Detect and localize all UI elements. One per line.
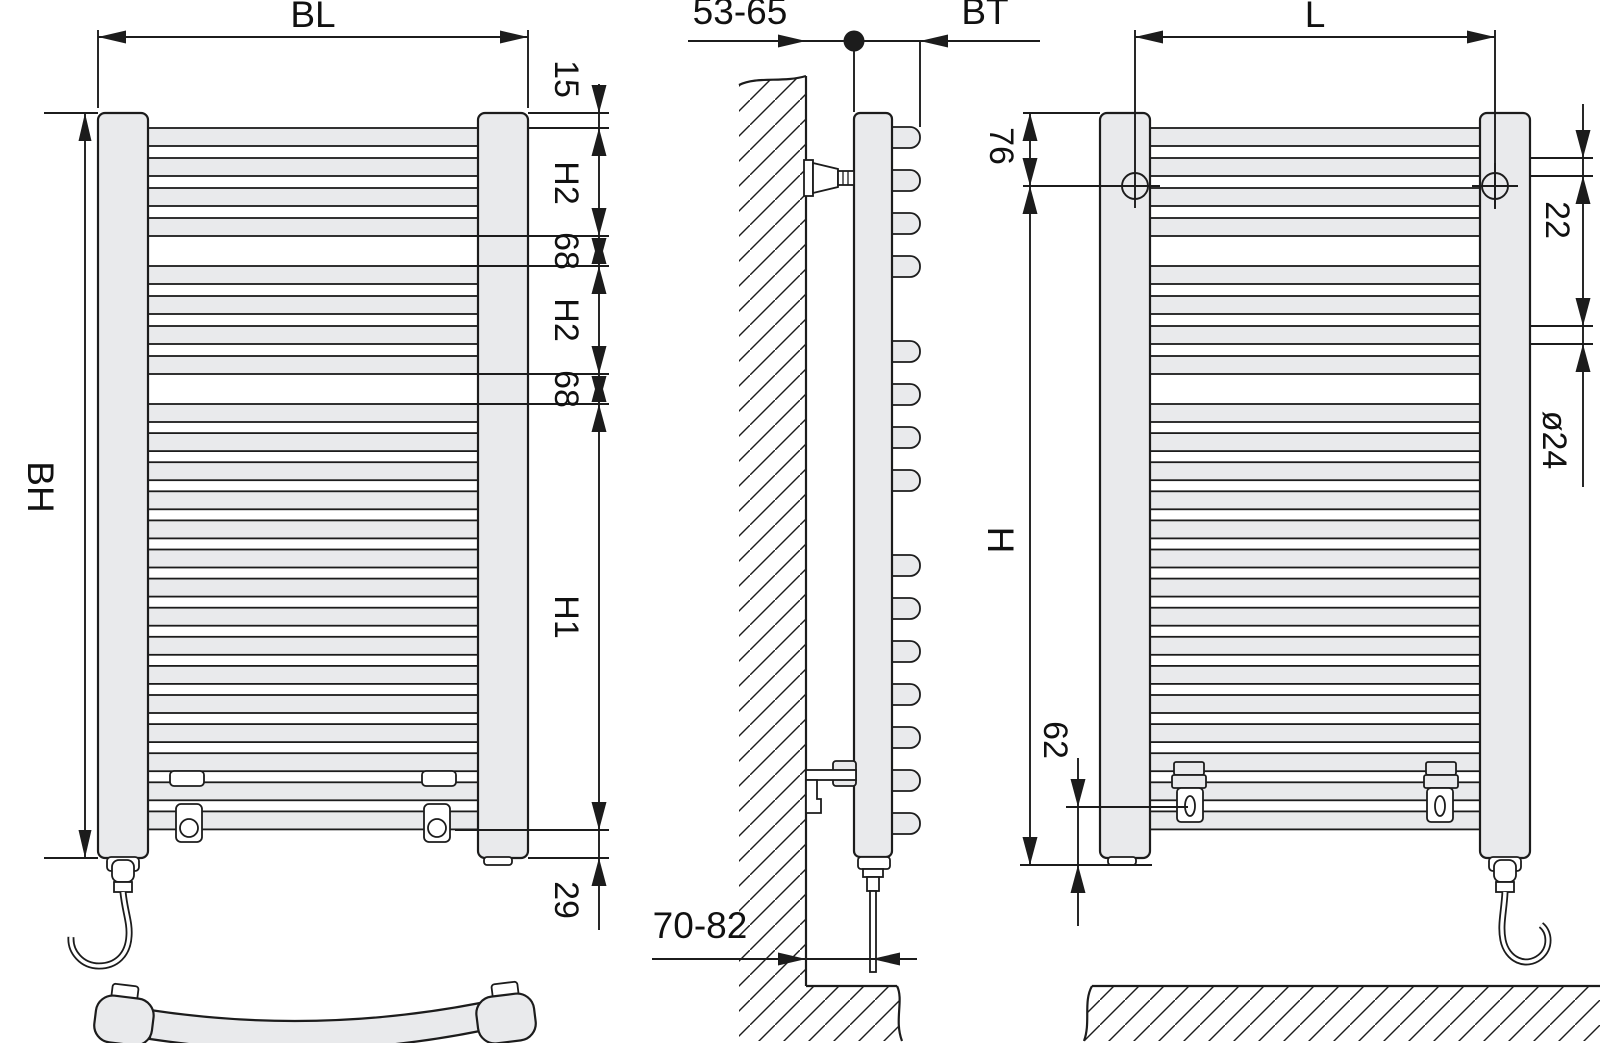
tube-band	[148, 158, 478, 176]
side-electric-element	[858, 857, 890, 972]
dim-label-22: 22	[1538, 201, 1576, 239]
front-view	[71, 113, 538, 1043]
dim-label-68-lower: 68	[547, 370, 585, 408]
back-left-post	[1100, 113, 1150, 858]
tube-band	[1150, 433, 1480, 451]
tube-band	[148, 404, 478, 422]
back-tube-bands	[1150, 128, 1480, 829]
floor-hatch	[1084, 986, 1600, 1041]
curved-tube-band	[150, 1003, 480, 1043]
dim-label-62: 62	[1036, 721, 1074, 759]
dim-label-bh: BH	[20, 461, 61, 512]
tube-band	[148, 520, 478, 538]
tube-band	[148, 724, 478, 742]
dim-label-68-upper: 68	[547, 232, 585, 270]
tube-band	[1150, 158, 1480, 176]
tube-band	[1150, 188, 1480, 206]
tube-band	[1150, 666, 1480, 684]
tube-band	[1150, 491, 1480, 509]
tube-band	[1150, 579, 1480, 597]
dim-label-h: H	[980, 527, 1021, 554]
dim-label-70-82: 70-82	[653, 905, 748, 946]
tube-band	[148, 491, 478, 509]
dim-label-29: 29	[547, 881, 585, 919]
dim-label-15: 15	[547, 60, 585, 98]
tube-band	[1150, 520, 1480, 538]
side-wall-stud	[804, 160, 854, 196]
tube-band	[148, 753, 478, 771]
tube-band	[148, 218, 478, 236]
plan-cap-left	[92, 994, 155, 1043]
side-post-bar	[854, 113, 892, 857]
tube-band	[1150, 462, 1480, 480]
tube-band	[1150, 550, 1480, 568]
drawing-canvas: BL BH 15 H2 68 H2 68 H1 29 53-65 BT 70-8…	[0, 0, 1600, 1043]
back-bracket-right	[1424, 762, 1458, 822]
radiator-dimension-drawing: BL BH 15 H2 68 H2 68 H1 29 53-65 BT 70-8…	[0, 0, 1600, 1043]
tube-band	[1150, 218, 1480, 236]
front-tube-bands	[148, 128, 478, 829]
tube-band	[148, 266, 478, 284]
back-right-post	[1480, 113, 1530, 858]
tube-band	[148, 637, 478, 655]
tube-band	[1150, 296, 1480, 314]
front-curved-plan-view	[92, 981, 537, 1043]
front-left-post	[98, 113, 148, 858]
front-bracket-right	[422, 771, 456, 842]
plan-cap-right	[474, 992, 537, 1043]
back-view	[1100, 113, 1548, 962]
tube-band	[148, 433, 478, 451]
side-view	[804, 113, 920, 972]
side-bottom-bracket	[806, 761, 856, 813]
tube-band	[148, 550, 478, 568]
tube-band	[148, 666, 478, 684]
tube-band	[1150, 404, 1480, 422]
dim-label-76: 76	[982, 127, 1020, 165]
front-foot-tab	[484, 857, 512, 865]
dim-label-h2-middle: H2	[547, 298, 585, 341]
tube-band	[1150, 724, 1480, 742]
dim-label-bl: BL	[290, 0, 335, 35]
dim-label-53-65: 53-65	[693, 0, 788, 32]
back-bracket-left	[1172, 762, 1206, 822]
back-foot-tab	[1108, 857, 1136, 865]
tube-band	[148, 128, 478, 146]
tube-band	[148, 608, 478, 626]
dim-label-h1: H1	[547, 595, 585, 638]
tube-band	[1150, 326, 1480, 344]
front-right-post	[478, 113, 528, 858]
tube-band	[148, 695, 478, 713]
tube-band	[1150, 356, 1480, 374]
tube-band	[148, 326, 478, 344]
dim-label-l: L	[1305, 0, 1326, 35]
dim-label-o24: ø24	[1535, 411, 1573, 470]
tube-band	[1150, 608, 1480, 626]
tube-band	[148, 579, 478, 597]
tube-band	[148, 296, 478, 314]
tube-band	[148, 462, 478, 480]
tube-band	[1150, 128, 1480, 146]
front-electric-element	[71, 857, 139, 966]
dim-label-h2-upper: H2	[547, 161, 585, 204]
tube-band	[1150, 266, 1480, 284]
tube-band	[148, 188, 478, 206]
back-electric-element	[1489, 857, 1548, 962]
tube-band	[1150, 637, 1480, 655]
cable-hook	[71, 892, 129, 966]
tube-band	[148, 356, 478, 374]
front-bracket-left	[170, 771, 204, 842]
tube-band	[1150, 695, 1480, 713]
dim-label-bt: BT	[961, 0, 1008, 32]
